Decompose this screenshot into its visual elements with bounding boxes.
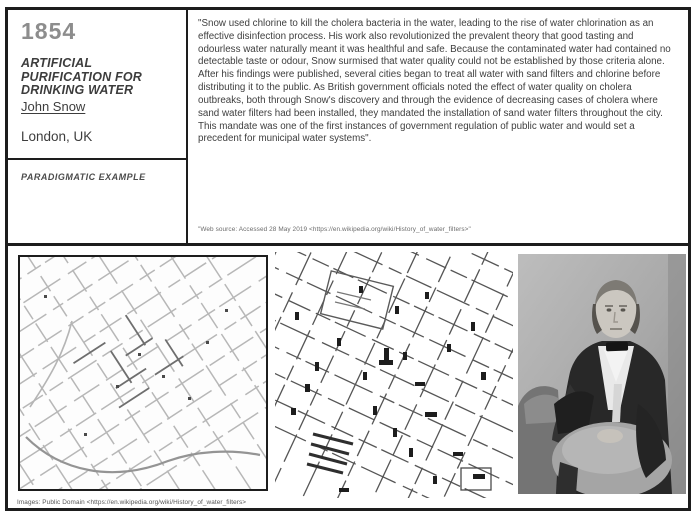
quote-panel: "Snow used chlorine to kill the cholera …: [188, 10, 688, 243]
info-panel: 1854 ARTIFICIAL PURIFICATION FOR DRINKIN…: [8, 10, 188, 243]
header-section: 1854 ARTIFICIAL PURIFICATION FOR DRINKIN…: [8, 10, 688, 246]
year-label: 1854: [21, 18, 176, 45]
john-snow-portrait-drawing: [518, 254, 686, 494]
cholera-outbreak-map-image: [275, 252, 513, 498]
quote-text: "Snow used chlorine to kill the cholera …: [198, 18, 676, 146]
john-snow-portrait-image: [518, 254, 686, 494]
source-note: "Web source: Accessed 28 May 2019 <https…: [198, 226, 471, 233]
info-panel-top: 1854 ARTIFICIAL PURIFICATION FOR DRINKIN…: [8, 10, 186, 160]
street-map-sketch-drawing: [20, 257, 266, 489]
person-name: John Snow: [21, 99, 176, 114]
cholera-outbreak-map-drawing: [275, 252, 513, 498]
street-map-sketch-image: [18, 255, 268, 491]
category-tag: PARADIGMATIC EXAMPLE: [21, 172, 176, 182]
exhibit-card: 1854 ARTIFICIAL PURIFICATION FOR DRINKIN…: [5, 7, 691, 511]
title-label: ARTIFICIAL PURIFICATION FOR DRINKING WAT…: [21, 57, 173, 98]
images-section: Images: Public Domain <https://en.wikipe…: [8, 246, 688, 508]
info-panel-bottom: PARADIGMATIC EXAMPLE: [8, 160, 186, 243]
location-label: London, UK: [21, 129, 176, 144]
images-caption: Images: Public Domain <https://en.wikipe…: [17, 499, 246, 506]
